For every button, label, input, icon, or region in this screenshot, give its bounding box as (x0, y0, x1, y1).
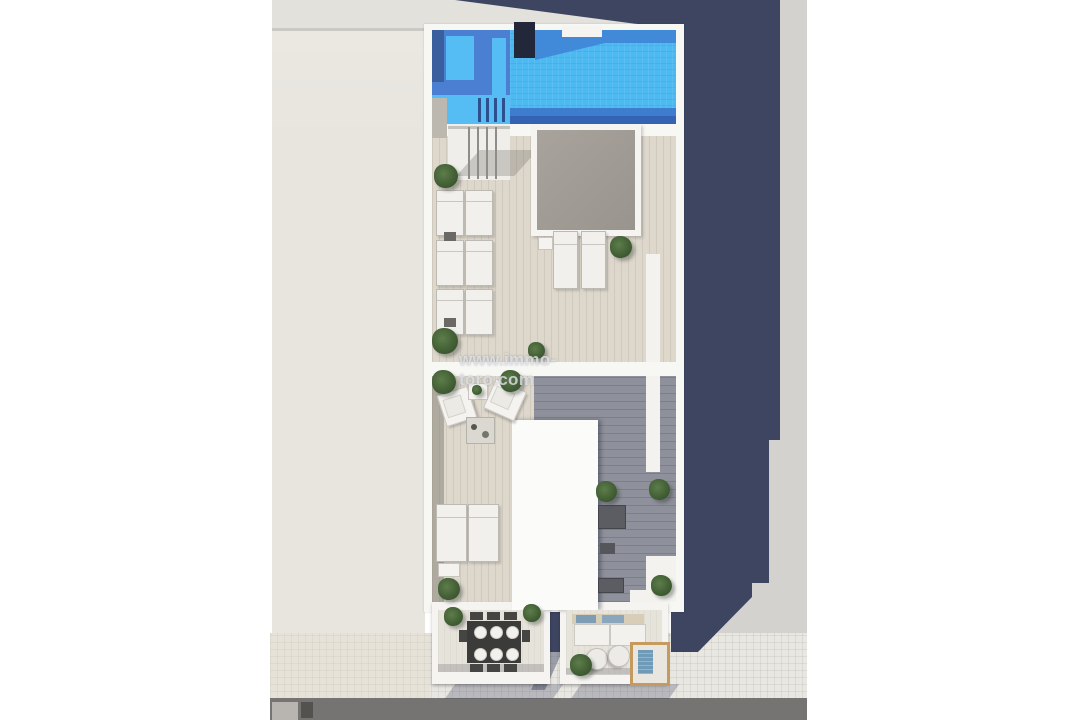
street-marking (272, 702, 298, 720)
shaded-lounger (598, 505, 626, 529)
render-canvas: www.immo-toro.com (0, 0, 1080, 720)
watermark-text: www.immo-toro.com (459, 350, 629, 390)
plant (610, 236, 632, 258)
plant (596, 481, 617, 502)
plate (506, 648, 519, 661)
side-table (538, 237, 553, 250)
railing-post (468, 127, 470, 179)
plant (434, 164, 458, 188)
railing-post (477, 127, 479, 179)
pool-ladder-post (494, 98, 497, 122)
plate (506, 626, 519, 639)
plant (649, 479, 670, 500)
dining-chair (487, 612, 500, 620)
neighbor-roof (272, 28, 425, 638)
plate (474, 648, 487, 661)
inner-wall (646, 376, 660, 472)
spa-bench (446, 36, 474, 80)
dining-chair (470, 664, 483, 672)
sun-lounger (465, 190, 493, 236)
stair-house-roof (512, 420, 598, 610)
pool-shadow (535, 30, 676, 43)
pool-ladder-post (502, 98, 505, 122)
plate (490, 648, 503, 661)
street-manhole (301, 702, 313, 718)
plant (444, 607, 463, 626)
plant (438, 578, 460, 600)
plant (432, 328, 458, 354)
dining-chair (487, 664, 500, 672)
spa-shadow (432, 30, 444, 82)
dining-chair (504, 612, 517, 620)
dining-chair (522, 630, 530, 642)
inner-wall (646, 254, 660, 362)
sun-lounger (436, 504, 467, 562)
sun-lounger (468, 504, 499, 562)
lounge-table (466, 417, 495, 444)
balcony-shadow (571, 684, 680, 699)
side-table (600, 543, 615, 554)
pool-deck-corner (432, 98, 447, 138)
street (270, 698, 807, 720)
sun-lounger (465, 289, 493, 335)
dining-chair (459, 630, 467, 642)
dining-chair (504, 664, 517, 672)
plant (570, 654, 592, 676)
sidewalk-tint (270, 633, 430, 699)
railing-post (495, 127, 497, 179)
plate (474, 626, 487, 639)
pool-ladder-post (478, 98, 481, 122)
round-pouf (608, 645, 630, 667)
stair-railing (448, 126, 510, 129)
railing-post (486, 127, 488, 179)
plant (432, 370, 456, 394)
side-table (444, 232, 456, 241)
sofa-pillow (602, 615, 624, 623)
daybed-cushion (638, 650, 653, 674)
sofa-pillow (576, 615, 596, 623)
skylight (537, 130, 635, 230)
spa-step-strip (492, 38, 506, 98)
dining-chair (470, 612, 483, 620)
sun-lounger (436, 190, 464, 236)
sun-lounger (436, 240, 464, 286)
shaded-lounger (598, 578, 624, 593)
inner-wall (630, 590, 648, 602)
side-table (438, 563, 460, 577)
plant (651, 575, 672, 596)
sofa-cushion (574, 624, 610, 646)
pool-ledge (562, 26, 602, 37)
right-ground (676, 0, 807, 636)
plate (490, 626, 503, 639)
side-table (444, 318, 456, 327)
plant (523, 604, 541, 622)
sun-lounger (581, 231, 606, 289)
sun-lounger (553, 231, 578, 289)
balcony-shadow (445, 684, 564, 699)
chimney (514, 22, 535, 58)
sun-lounger (465, 240, 493, 286)
pool-ladder-post (486, 98, 489, 122)
